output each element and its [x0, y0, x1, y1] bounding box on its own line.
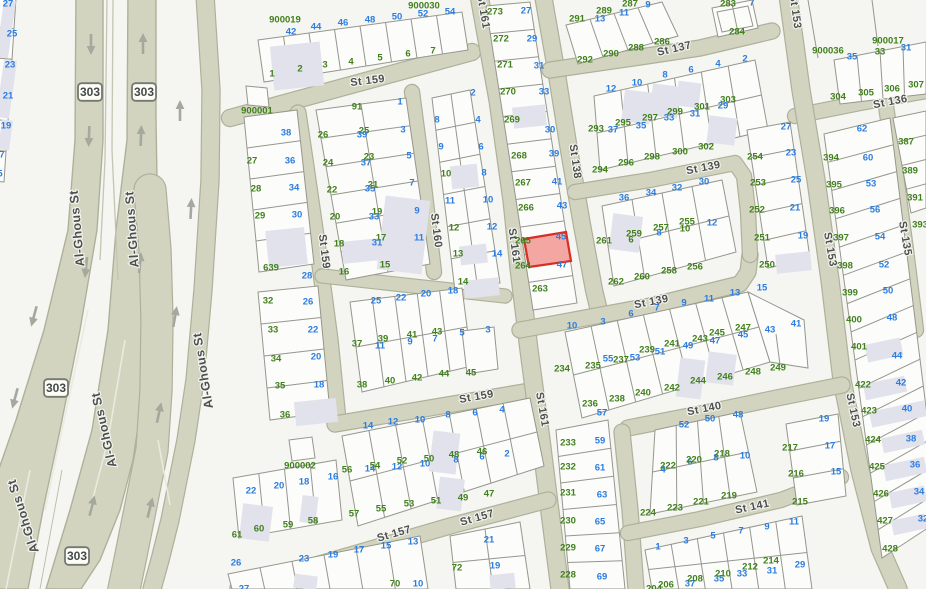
- svg-text:288: 288: [628, 43, 644, 54]
- svg-text:59: 59: [283, 520, 294, 531]
- svg-text:240: 240: [635, 388, 651, 399]
- svg-text:20: 20: [274, 481, 285, 492]
- svg-text:15: 15: [381, 541, 392, 552]
- svg-text:17: 17: [354, 545, 365, 556]
- svg-text:259: 259: [626, 229, 642, 240]
- svg-text:33: 33: [369, 212, 380, 223]
- svg-text:14: 14: [492, 249, 503, 260]
- svg-text:221: 221: [693, 497, 710, 508]
- svg-text:219: 219: [721, 491, 737, 502]
- svg-text:21: 21: [790, 203, 801, 214]
- svg-text:27: 27: [521, 6, 532, 17]
- svg-text:23: 23: [299, 554, 310, 565]
- svg-text:223: 223: [667, 503, 683, 514]
- svg-text:283: 283: [720, 0, 736, 10]
- svg-text:393: 393: [912, 220, 926, 231]
- svg-text:8: 8: [445, 410, 450, 421]
- svg-text:307: 307: [908, 80, 924, 91]
- svg-text:52: 52: [397, 456, 408, 467]
- svg-text:262: 262: [608, 277, 624, 288]
- svg-text:249: 249: [770, 363, 786, 374]
- svg-text:37: 37: [352, 339, 363, 350]
- svg-text:428: 428: [882, 544, 898, 555]
- svg-text:11: 11: [704, 294, 715, 305]
- svg-text:34: 34: [271, 354, 282, 365]
- svg-text:396: 396: [829, 206, 845, 217]
- svg-text:244: 244: [690, 376, 707, 387]
- svg-text:57: 57: [349, 509, 360, 520]
- svg-text:42: 42: [412, 373, 423, 384]
- svg-text:34: 34: [289, 183, 300, 194]
- svg-text:61: 61: [595, 463, 606, 474]
- svg-text:63: 63: [597, 490, 608, 501]
- svg-text:292: 292: [577, 55, 593, 66]
- svg-text:12: 12: [449, 223, 460, 234]
- svg-text:21: 21: [3, 91, 14, 102]
- svg-text:266: 266: [518, 203, 534, 214]
- svg-text:230: 230: [560, 516, 576, 527]
- svg-text:303: 303: [46, 381, 66, 395]
- svg-text:212: 212: [742, 562, 758, 573]
- svg-text:208: 208: [687, 574, 703, 585]
- svg-text:10: 10: [483, 195, 494, 206]
- svg-text:256: 256: [687, 262, 703, 273]
- svg-text:254: 254: [747, 152, 764, 163]
- svg-text:424: 424: [865, 435, 882, 446]
- svg-text:40: 40: [385, 376, 396, 387]
- svg-text:51: 51: [431, 496, 442, 507]
- svg-text:6: 6: [628, 309, 633, 320]
- svg-text:234: 234: [554, 364, 571, 375]
- svg-text:265: 265: [515, 236, 532, 247]
- svg-text:5: 5: [406, 151, 412, 162]
- svg-text:253: 253: [750, 178, 766, 189]
- svg-text:13: 13: [595, 14, 606, 25]
- svg-text:25: 25: [7, 29, 18, 40]
- svg-text:7: 7: [430, 46, 435, 57]
- svg-text:57: 57: [597, 408, 608, 419]
- svg-text:423: 423: [861, 406, 877, 417]
- svg-text:54: 54: [445, 7, 456, 18]
- svg-text:264: 264: [515, 261, 532, 272]
- svg-text:3: 3: [400, 125, 405, 136]
- svg-text:3: 3: [485, 325, 490, 336]
- svg-text:394: 394: [823, 153, 840, 164]
- svg-text:31: 31: [901, 43, 912, 54]
- svg-text:56: 56: [870, 205, 881, 216]
- svg-text:67: 67: [595, 544, 606, 555]
- svg-text:391: 391: [907, 193, 924, 204]
- svg-text:10: 10: [413, 579, 424, 589]
- svg-text:273: 273: [487, 7, 503, 18]
- svg-text:41: 41: [791, 319, 802, 330]
- svg-text:235: 235: [585, 361, 602, 372]
- svg-text:900017: 900017: [872, 36, 904, 47]
- svg-text:34: 34: [914, 487, 925, 498]
- svg-text:13: 13: [730, 288, 741, 299]
- svg-text:258: 258: [661, 266, 677, 277]
- svg-text:18: 18: [334, 239, 345, 250]
- svg-text:52: 52: [879, 260, 890, 271]
- svg-text:252: 252: [749, 205, 765, 216]
- svg-text:72: 72: [452, 563, 463, 574]
- svg-text:91: 91: [352, 102, 363, 113]
- svg-text:58: 58: [308, 516, 319, 527]
- svg-text:22: 22: [327, 185, 338, 196]
- svg-text:59: 59: [595, 436, 606, 447]
- svg-text:220: 220: [686, 455, 702, 466]
- svg-text:231: 231: [560, 488, 577, 499]
- svg-text:25: 25: [371, 296, 382, 307]
- svg-text:255: 255: [679, 217, 696, 228]
- svg-text:20: 20: [421, 289, 432, 300]
- svg-text:5: 5: [459, 328, 465, 339]
- svg-text:303: 303: [720, 95, 736, 106]
- svg-text:39: 39: [357, 130, 368, 141]
- svg-text:43: 43: [432, 327, 443, 338]
- svg-text:422: 422: [855, 380, 871, 391]
- svg-text:23: 23: [5, 60, 16, 71]
- svg-text:48: 48: [733, 410, 744, 421]
- svg-text:30: 30: [699, 177, 710, 188]
- svg-text:302: 302: [698, 142, 714, 153]
- svg-text:28: 28: [302, 271, 313, 282]
- svg-text:210: 210: [715, 569, 731, 580]
- svg-text:19: 19: [798, 231, 809, 242]
- svg-text:48: 48: [365, 15, 376, 26]
- svg-text:50: 50: [883, 286, 894, 297]
- svg-text:12: 12: [707, 218, 718, 229]
- svg-text:52: 52: [418, 9, 429, 20]
- svg-text:6: 6: [405, 49, 410, 60]
- svg-text:54: 54: [875, 232, 886, 243]
- svg-text:217: 217: [782, 443, 798, 454]
- svg-text:218: 218: [714, 449, 730, 460]
- svg-text:44: 44: [311, 22, 322, 33]
- svg-text:270: 270: [500, 87, 516, 98]
- svg-text:900036: 900036: [812, 46, 844, 57]
- svg-text:3: 3: [322, 60, 327, 71]
- svg-text:291: 291: [569, 14, 586, 25]
- svg-text:47: 47: [557, 260, 568, 271]
- svg-text:236: 236: [582, 399, 598, 410]
- svg-text:28: 28: [251, 184, 262, 195]
- svg-text:248: 248: [745, 367, 761, 378]
- svg-text:242: 242: [664, 383, 680, 394]
- svg-text:303: 303: [80, 85, 100, 99]
- svg-text:4: 4: [348, 57, 354, 68]
- svg-text:304: 304: [830, 92, 847, 103]
- svg-text:11: 11: [414, 233, 425, 244]
- svg-text:32: 32: [263, 296, 274, 307]
- svg-text:29: 29: [255, 211, 266, 222]
- svg-text:245: 245: [709, 328, 726, 339]
- svg-text:243: 243: [692, 334, 708, 345]
- svg-text:10: 10: [740, 451, 751, 462]
- svg-text:19: 19: [819, 414, 830, 425]
- svg-text:31: 31: [534, 61, 545, 72]
- svg-text:52: 52: [679, 420, 690, 431]
- svg-text:267: 267: [515, 178, 531, 189]
- svg-text:26: 26: [231, 558, 242, 569]
- svg-text:6: 6: [472, 408, 477, 419]
- svg-text:27: 27: [781, 122, 792, 133]
- svg-text:38: 38: [281, 128, 292, 139]
- svg-text:15: 15: [831, 467, 842, 478]
- svg-text:263: 263: [532, 284, 548, 295]
- svg-text:271: 271: [497, 60, 514, 71]
- svg-text:22: 22: [396, 293, 407, 304]
- svg-text:299: 299: [667, 107, 683, 118]
- svg-text:401: 401: [851, 342, 868, 353]
- svg-text:296: 296: [618, 158, 634, 169]
- svg-text:38: 38: [357, 380, 368, 391]
- svg-text:46: 46: [477, 447, 488, 458]
- svg-text:21: 21: [484, 535, 495, 546]
- svg-text:26: 26: [303, 297, 314, 308]
- svg-text:303: 303: [134, 85, 154, 99]
- svg-text:62: 62: [857, 124, 868, 135]
- svg-text:18: 18: [299, 477, 310, 488]
- svg-text:13: 13: [408, 537, 419, 548]
- svg-text:301: 301: [694, 102, 711, 113]
- svg-text:19: 19: [490, 561, 501, 572]
- svg-text:37: 37: [361, 158, 372, 169]
- svg-text:900002: 900002: [284, 461, 316, 472]
- svg-text:400: 400: [846, 315, 862, 326]
- svg-text:70: 70: [390, 579, 401, 589]
- svg-text:250: 250: [759, 260, 775, 271]
- svg-text:11: 11: [619, 8, 630, 19]
- svg-text:397: 397: [833, 233, 849, 244]
- svg-text:33: 33: [539, 87, 550, 98]
- svg-text:305: 305: [858, 88, 875, 99]
- svg-text:4: 4: [715, 59, 721, 70]
- svg-text:261: 261: [596, 236, 613, 247]
- svg-text:16: 16: [339, 267, 350, 278]
- svg-text:65: 65: [595, 517, 606, 528]
- svg-text:18: 18: [314, 380, 325, 391]
- svg-text:7: 7: [749, 0, 754, 9]
- svg-text:389: 389: [902, 166, 918, 177]
- svg-text:20: 20: [311, 352, 322, 363]
- svg-text:44: 44: [892, 351, 903, 362]
- svg-text:47: 47: [484, 489, 495, 500]
- svg-text:12: 12: [606, 84, 617, 95]
- svg-text:32: 32: [672, 183, 683, 194]
- svg-text:53: 53: [404, 499, 415, 510]
- svg-text:426: 426: [873, 489, 889, 500]
- svg-text:34: 34: [646, 188, 657, 199]
- svg-text:33: 33: [268, 325, 279, 336]
- svg-text:425: 425: [869, 462, 886, 473]
- svg-text:251: 251: [754, 233, 771, 244]
- svg-text:1: 1: [269, 69, 275, 80]
- svg-text:44: 44: [439, 369, 450, 380]
- svg-text:48: 48: [887, 313, 898, 324]
- svg-text:14: 14: [458, 277, 469, 288]
- svg-text:233: 233: [560, 438, 576, 449]
- svg-text:268: 268: [511, 151, 527, 162]
- svg-text:15: 15: [757, 283, 768, 294]
- svg-text:36: 36: [910, 460, 921, 471]
- svg-text:5: 5: [710, 531, 716, 542]
- svg-text:61: 61: [232, 530, 243, 541]
- svg-text:36: 36: [280, 410, 291, 421]
- svg-text:38: 38: [906, 434, 917, 445]
- svg-text:387: 387: [898, 137, 914, 148]
- svg-text:10: 10: [415, 415, 426, 426]
- svg-text:11: 11: [789, 517, 800, 528]
- svg-text:12: 12: [487, 222, 498, 233]
- svg-text:6: 6: [478, 142, 483, 153]
- svg-text:9: 9: [645, 0, 650, 11]
- svg-text:27: 27: [239, 584, 250, 589]
- svg-text:229: 229: [560, 543, 576, 554]
- svg-text:56: 56: [342, 465, 353, 476]
- svg-text:2: 2: [742, 54, 747, 65]
- svg-text:2: 2: [470, 88, 475, 99]
- svg-text:1: 1: [397, 97, 403, 108]
- svg-text:10: 10: [441, 169, 452, 180]
- svg-text:13: 13: [453, 249, 464, 260]
- svg-text:22: 22: [308, 325, 319, 336]
- svg-text:27: 27: [247, 156, 258, 167]
- svg-text:9: 9: [414, 206, 419, 217]
- svg-text:39: 39: [378, 334, 389, 345]
- svg-text:35: 35: [365, 184, 376, 195]
- svg-text:60: 60: [863, 153, 874, 164]
- svg-text:5: 5: [377, 53, 383, 64]
- svg-text:260: 260: [634, 272, 650, 283]
- svg-text:26: 26: [318, 130, 329, 141]
- svg-text:55: 55: [376, 504, 387, 515]
- svg-text:247: 247: [735, 323, 751, 334]
- svg-text:900019: 900019: [269, 15, 301, 26]
- svg-text:6: 6: [688, 65, 693, 76]
- svg-text:224: 224: [640, 508, 657, 519]
- svg-text:17: 17: [825, 441, 836, 452]
- svg-text:399: 399: [842, 288, 858, 299]
- svg-text:272: 272: [493, 34, 509, 45]
- svg-text:32: 32: [918, 514, 926, 525]
- svg-text:41: 41: [552, 177, 563, 188]
- svg-text:303: 303: [67, 549, 87, 563]
- svg-text:10: 10: [632, 78, 643, 89]
- svg-text:290: 290: [603, 49, 619, 60]
- svg-text:27: 27: [3, 0, 14, 10]
- svg-text:297: 297: [642, 113, 658, 124]
- svg-text:257: 257: [653, 223, 669, 234]
- svg-text:241: 241: [664, 339, 681, 350]
- svg-text:9: 9: [764, 522, 769, 533]
- svg-text:8: 8: [434, 115, 439, 126]
- svg-text:46: 46: [338, 18, 349, 29]
- svg-text:228: 228: [560, 570, 576, 581]
- svg-text:39: 39: [549, 149, 560, 160]
- svg-text:18: 18: [448, 286, 459, 297]
- svg-text:300: 300: [672, 147, 688, 158]
- svg-text:24: 24: [323, 158, 334, 169]
- svg-text:639: 639: [263, 263, 279, 274]
- svg-text:286: 286: [654, 37, 670, 48]
- svg-text:36: 36: [619, 193, 630, 204]
- svg-text:232: 232: [560, 462, 576, 473]
- svg-text:427: 427: [877, 516, 893, 527]
- svg-text:216: 216: [788, 469, 804, 480]
- svg-text:54: 54: [370, 461, 381, 472]
- svg-text:4: 4: [499, 405, 505, 416]
- svg-text:48: 48: [449, 450, 460, 461]
- svg-text:15: 15: [380, 260, 391, 271]
- svg-text:2: 2: [504, 449, 509, 460]
- svg-text:10: 10: [567, 321, 578, 332]
- svg-text:22: 22: [246, 486, 257, 497]
- svg-text:7: 7: [0, 150, 5, 161]
- svg-text:45: 45: [556, 232, 567, 243]
- svg-text:295: 295: [615, 118, 632, 129]
- svg-text:43: 43: [557, 201, 568, 212]
- svg-text:239: 239: [639, 345, 655, 356]
- svg-text:50: 50: [705, 414, 716, 425]
- svg-text:12: 12: [388, 417, 399, 428]
- svg-text:7: 7: [654, 303, 659, 314]
- svg-text:60: 60: [254, 524, 265, 535]
- svg-text:49: 49: [458, 493, 469, 504]
- svg-text:19: 19: [1, 121, 12, 132]
- svg-text:293: 293: [588, 124, 604, 135]
- svg-text:19: 19: [328, 550, 339, 561]
- svg-text:3: 3: [600, 317, 605, 328]
- svg-text:9: 9: [681, 298, 686, 309]
- svg-text:3: 3: [683, 536, 688, 547]
- svg-text:42: 42: [896, 378, 907, 389]
- svg-text:33: 33: [875, 47, 886, 58]
- svg-text:215: 215: [792, 497, 809, 508]
- svg-text:31: 31: [767, 566, 778, 577]
- svg-text:50: 50: [424, 454, 435, 465]
- svg-text:294: 294: [592, 165, 609, 176]
- svg-text:214: 214: [763, 556, 780, 567]
- svg-text:206: 206: [658, 580, 674, 589]
- svg-text:2: 2: [297, 64, 302, 75]
- svg-text:284: 284: [729, 27, 746, 38]
- svg-text:900001: 900001: [241, 106, 273, 117]
- svg-text:269: 269: [504, 115, 520, 126]
- svg-text:25: 25: [791, 175, 802, 186]
- svg-text:8: 8: [662, 70, 667, 81]
- svg-text:4: 4: [475, 115, 481, 126]
- svg-text:30: 30: [545, 125, 556, 136]
- svg-text:8: 8: [481, 168, 486, 179]
- svg-text:14: 14: [363, 421, 374, 432]
- svg-text:42: 42: [286, 27, 297, 38]
- svg-text:11: 11: [445, 196, 456, 207]
- svg-text:35: 35: [275, 381, 286, 392]
- svg-text:53: 53: [866, 179, 877, 190]
- svg-text:298: 298: [644, 152, 660, 163]
- svg-text:306: 306: [884, 84, 900, 95]
- svg-text:41: 41: [407, 330, 418, 341]
- svg-text:69: 69: [597, 572, 608, 583]
- svg-text:9: 9: [438, 142, 443, 153]
- svg-text:35: 35: [847, 52, 858, 63]
- svg-text:20: 20: [330, 212, 341, 223]
- svg-text:7: 7: [409, 178, 414, 189]
- svg-text:23: 23: [786, 148, 797, 159]
- svg-text:238: 238: [609, 394, 625, 405]
- svg-text:40: 40: [902, 404, 913, 415]
